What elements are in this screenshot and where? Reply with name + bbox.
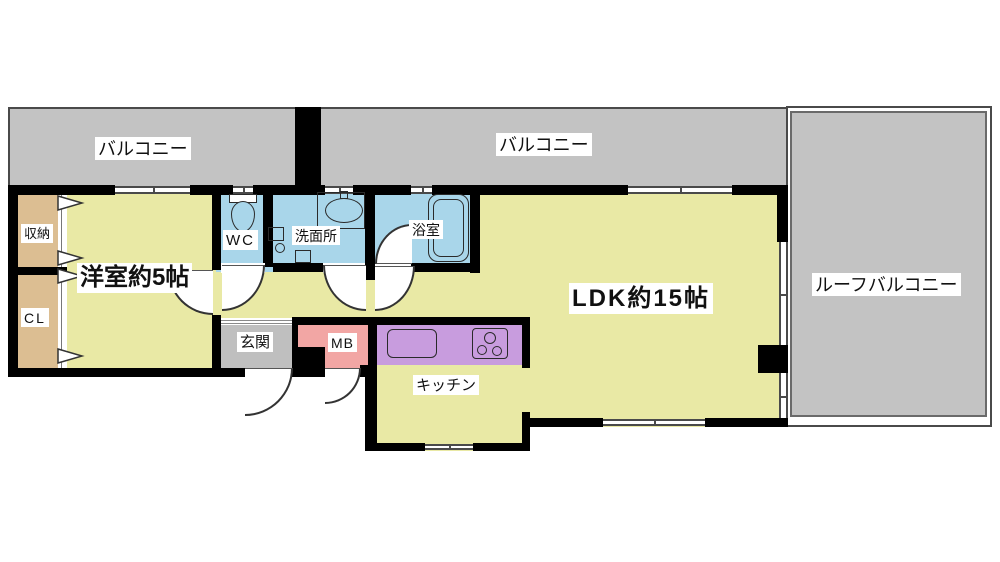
label-western-room: 洋室約5帖 bbox=[77, 263, 192, 293]
window bbox=[779, 373, 788, 418]
wall bbox=[522, 412, 530, 451]
balcony-divider-wall bbox=[295, 107, 321, 191]
washing-machine-icon bbox=[268, 227, 284, 241]
label-closet: CL bbox=[21, 308, 49, 327]
stove-burner-icon bbox=[484, 332, 496, 344]
wall bbox=[212, 195, 221, 270]
wall bbox=[470, 190, 480, 273]
wall bbox=[705, 418, 788, 427]
wall bbox=[365, 190, 375, 280]
washing-machine-icon bbox=[275, 243, 285, 253]
wall bbox=[411, 263, 480, 272]
stove-burner-icon bbox=[477, 345, 487, 355]
window bbox=[628, 186, 732, 194]
wall bbox=[365, 443, 425, 451]
label-meter-box: MB bbox=[328, 333, 357, 352]
wall bbox=[758, 345, 788, 373]
wall bbox=[8, 185, 18, 377]
wall bbox=[777, 185, 788, 242]
label-roof-balcony: ルーフバルコニー bbox=[812, 273, 961, 296]
wall bbox=[292, 347, 325, 377]
stove-burner-icon bbox=[492, 346, 502, 356]
window bbox=[115, 186, 190, 194]
kitchen-sink-icon bbox=[387, 329, 437, 358]
label-balcony-center: バルコニー bbox=[496, 133, 592, 156]
label-ldk: LDK約15帖 bbox=[569, 283, 713, 314]
faucet-icon bbox=[340, 191, 348, 199]
window bbox=[411, 186, 432, 194]
window bbox=[233, 186, 253, 194]
wall bbox=[212, 315, 221, 368]
wall bbox=[273, 263, 323, 272]
wall bbox=[190, 185, 233, 195]
wall bbox=[368, 317, 377, 368]
label-kitchen: キッチン bbox=[413, 375, 479, 395]
label-balcony-left: バルコニー bbox=[95, 137, 191, 160]
room-roof-balcony bbox=[790, 111, 987, 417]
wall bbox=[8, 368, 245, 377]
wall bbox=[365, 368, 377, 451]
label-storage: 収納 bbox=[21, 224, 53, 243]
window bbox=[603, 419, 705, 426]
floor-plan: バルコニー バルコニー ルーフバルコニー 収納 CL 洋室約5帖 WC 洗面所 … bbox=[0, 0, 1000, 562]
window bbox=[425, 444, 473, 450]
sink-icon bbox=[325, 198, 363, 223]
label-washroom: 洗面所 bbox=[292, 226, 340, 245]
door-arc-meter-box bbox=[325, 368, 361, 404]
entrance-step-lines bbox=[218, 318, 298, 325]
label-bathroom: 浴室 bbox=[409, 220, 443, 239]
washing-machine-icon bbox=[295, 250, 311, 263]
window bbox=[779, 242, 788, 345]
label-entrance: 玄関 bbox=[237, 332, 273, 352]
wall bbox=[530, 418, 603, 427]
wall bbox=[292, 317, 530, 325]
label-wc: WC bbox=[223, 230, 258, 250]
door-arc-entrance bbox=[245, 368, 293, 416]
wall bbox=[522, 317, 530, 368]
